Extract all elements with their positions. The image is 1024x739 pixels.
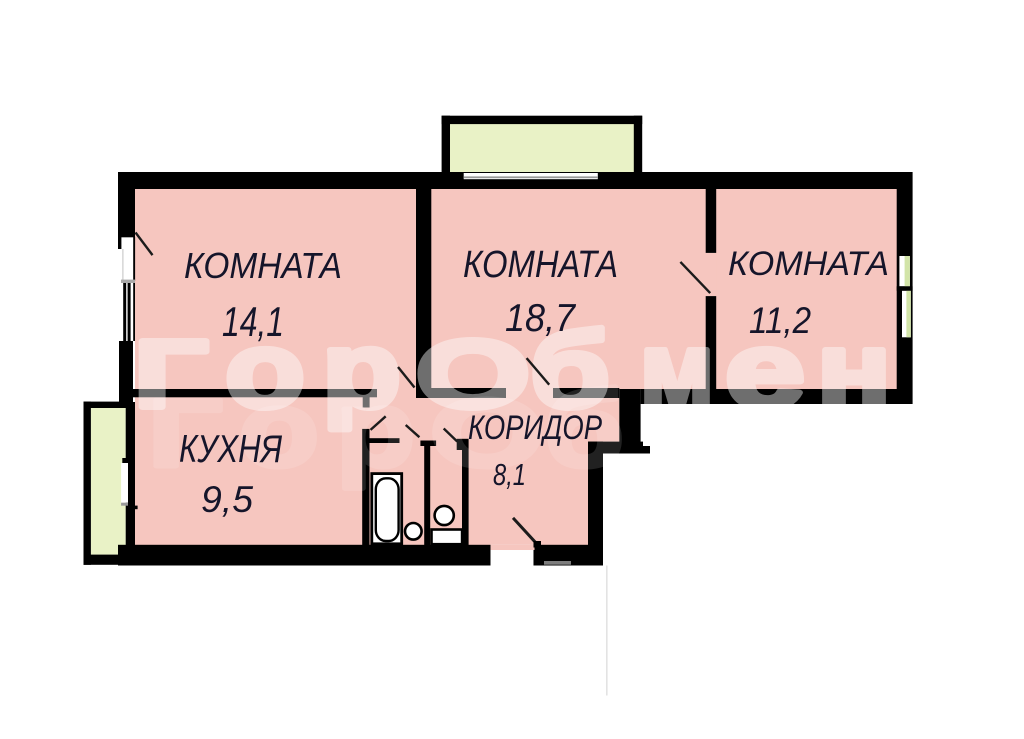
svg-text:КОМНАТА: КОМНАТА	[463, 244, 618, 286]
svg-text:КОРИДОР: КОРИДОР	[468, 409, 602, 447]
svg-text:Г: Г	[134, 321, 208, 428]
svg-text:н: н	[817, 309, 891, 430]
svg-text:14,1: 14,1	[222, 298, 284, 345]
svg-text:11,2: 11,2	[749, 300, 811, 341]
svg-text:р: р	[322, 309, 401, 430]
svg-text:КОМНАТА: КОМНАТА	[184, 245, 342, 286]
svg-text:КУХНЯ: КУХНЯ	[179, 428, 283, 471]
svg-text:9,5: 9,5	[201, 478, 253, 520]
svg-text:8,1: 8,1	[493, 457, 526, 492]
svg-text:КОМНАТА: КОМНАТА	[728, 245, 889, 283]
svg-text:м: м	[640, 309, 714, 430]
svg-text:18,7: 18,7	[505, 297, 576, 340]
